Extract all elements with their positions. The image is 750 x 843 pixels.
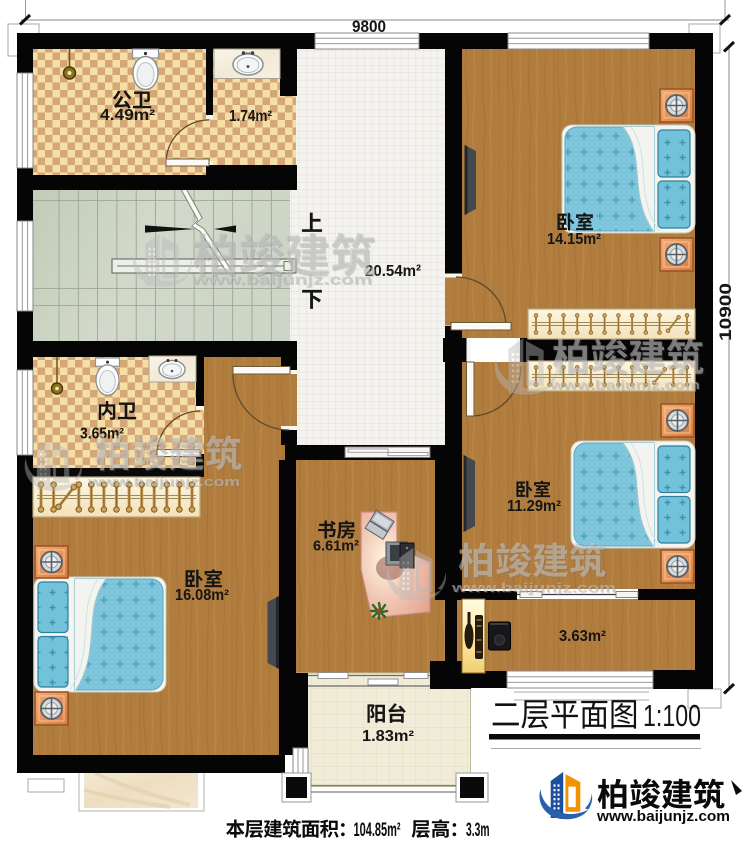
svg-text:14.15m²: 14.15m² — [547, 231, 601, 248]
svg-text:www.baijunjz.com: www.baijunjz.com — [549, 377, 700, 392]
svg-text:3.63m²: 3.63m² — [559, 628, 606, 645]
svg-text:104.85m²: 104.85m² — [354, 820, 401, 841]
svg-text:1.74m²: 1.74m² — [229, 108, 272, 125]
svg-text:www.baijunjz.com: www.baijunjz.com — [191, 271, 372, 287]
svg-text:11.29m²: 11.29m² — [507, 498, 561, 515]
svg-text:1:100: 1:100 — [643, 698, 701, 733]
svg-text:10900: 10900 — [716, 283, 735, 341]
svg-text:www.baijunjz.com: www.baijunjz.com — [596, 809, 730, 825]
svg-text:9800: 9800 — [352, 17, 386, 36]
svg-text:4.49m²: 4.49m² — [100, 107, 155, 124]
svg-text:1.83m²: 1.83m² — [362, 728, 414, 745]
svg-text:www.baijunjz.com: www.baijunjz.com — [87, 475, 240, 489]
svg-text:www.baijunjz.com: www.baijunjz.com — [451, 580, 616, 595]
svg-text:6.61m²: 6.61m² — [313, 538, 359, 555]
svg-text:3.3m: 3.3m — [466, 820, 490, 841]
svg-text:16.08m²: 16.08m² — [175, 587, 229, 604]
